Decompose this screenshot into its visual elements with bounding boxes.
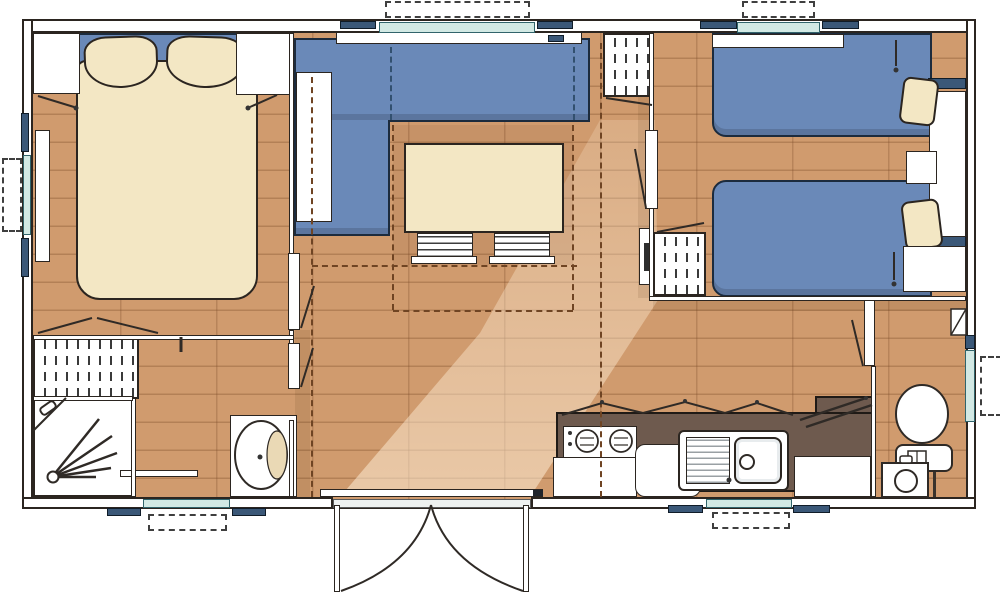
chair-1-base	[411, 256, 477, 264]
wall-wardrobe-divider-h	[33, 396, 133, 401]
chair-1	[417, 233, 473, 258]
chair-2-base	[489, 256, 555, 264]
awning-marker-top-twin	[742, 1, 815, 18]
window-living-top	[379, 22, 535, 33]
entrance-leaf-right	[523, 505, 529, 592]
shutter-tab	[340, 21, 376, 29]
window-master-left	[23, 155, 31, 235]
wc-partition	[933, 445, 936, 497]
door-bathroom	[288, 343, 300, 389]
pillow-2	[900, 198, 944, 251]
door-master	[288, 253, 300, 330]
zone-line-v1	[311, 77, 313, 497]
awning-marker-left	[2, 158, 22, 232]
drop-down-bunk	[296, 72, 332, 222]
awning-marker-bottom-shower	[148, 514, 227, 531]
floor-plan	[0, 0, 1000, 594]
base-cabinet	[553, 457, 637, 497]
shutter-tab	[822, 21, 859, 29]
wardrobe-living	[603, 33, 651, 97]
shower-tray	[33, 398, 134, 497]
window-shelf-left	[35, 130, 50, 262]
zone-line-h2	[393, 310, 573, 312]
table-zone-right	[572, 125, 574, 310]
window-twin-top	[737, 22, 820, 33]
shutter-tab	[21, 113, 29, 152]
entrance-threshold	[333, 499, 531, 508]
wall-wc-left	[871, 366, 876, 497]
shutter-tab	[21, 238, 29, 277]
wall-twin-left-upper	[649, 33, 654, 132]
single-bed-1	[712, 33, 932, 137]
head-shelf-2	[903, 246, 966, 292]
entrance-swing-left	[341, 505, 431, 591]
wall-twin-left-lower	[649, 208, 654, 300]
window-wc-right	[965, 350, 975, 422]
wall-shower-divider-v	[131, 398, 136, 497]
window-shower-bottom	[143, 499, 230, 508]
nightstand-right	[236, 33, 291, 95]
cabinet-right	[794, 456, 871, 497]
entrance-step-bar	[320, 489, 543, 497]
sofa-divider-2	[573, 47, 575, 120]
nightstand-left	[33, 33, 80, 94]
dining-table	[404, 143, 564, 233]
twin-wall-shadow	[653, 300, 966, 311]
wall-right	[966, 19, 976, 509]
entrance-latch	[533, 490, 543, 496]
table-zone-left	[392, 125, 394, 310]
nightstand-twin	[906, 151, 937, 184]
zone-line-h1	[312, 265, 577, 267]
wall-twin-bottom	[649, 296, 966, 301]
wardrobe-master	[33, 337, 139, 399]
wall-master-right-lower	[289, 420, 294, 497]
shutter-tab	[965, 335, 975, 349]
chair-2	[494, 233, 550, 258]
shutter-tab	[537, 21, 573, 29]
awning-marker-right	[980, 356, 1000, 416]
sink-drainer	[686, 437, 730, 484]
sofa-divider-1	[390, 47, 392, 120]
shutter-tab	[793, 505, 830, 513]
washbasin-unit	[230, 415, 297, 497]
shelf-end-cap	[548, 35, 564, 42]
awning-marker-top-living	[385, 1, 530, 18]
shutter-tab	[107, 508, 141, 516]
head-shelf-1	[712, 34, 844, 48]
single-bed-2	[712, 180, 932, 297]
entrance-leaf-left	[334, 505, 340, 592]
shutter-tab	[232, 508, 266, 516]
wall-master-bottom	[33, 335, 294, 340]
double-bed	[76, 60, 258, 300]
door-wc	[864, 300, 875, 366]
zone-line-v2	[600, 43, 602, 497]
awning-marker-bottom-kitchen	[712, 512, 790, 529]
sink-bowl	[734, 437, 782, 484]
wardrobe-low	[653, 232, 706, 296]
wall-master-right-upper	[289, 33, 294, 254]
entrance-swing-right	[431, 505, 523, 591]
pillow-1	[898, 76, 939, 127]
shutter-tab	[700, 21, 737, 29]
door-twin	[645, 130, 658, 209]
window-shelf-sofa	[336, 32, 582, 44]
corner-sofa-top	[294, 38, 590, 122]
shutter-tab	[668, 505, 703, 513]
window-kitchen-bottom	[706, 499, 792, 508]
